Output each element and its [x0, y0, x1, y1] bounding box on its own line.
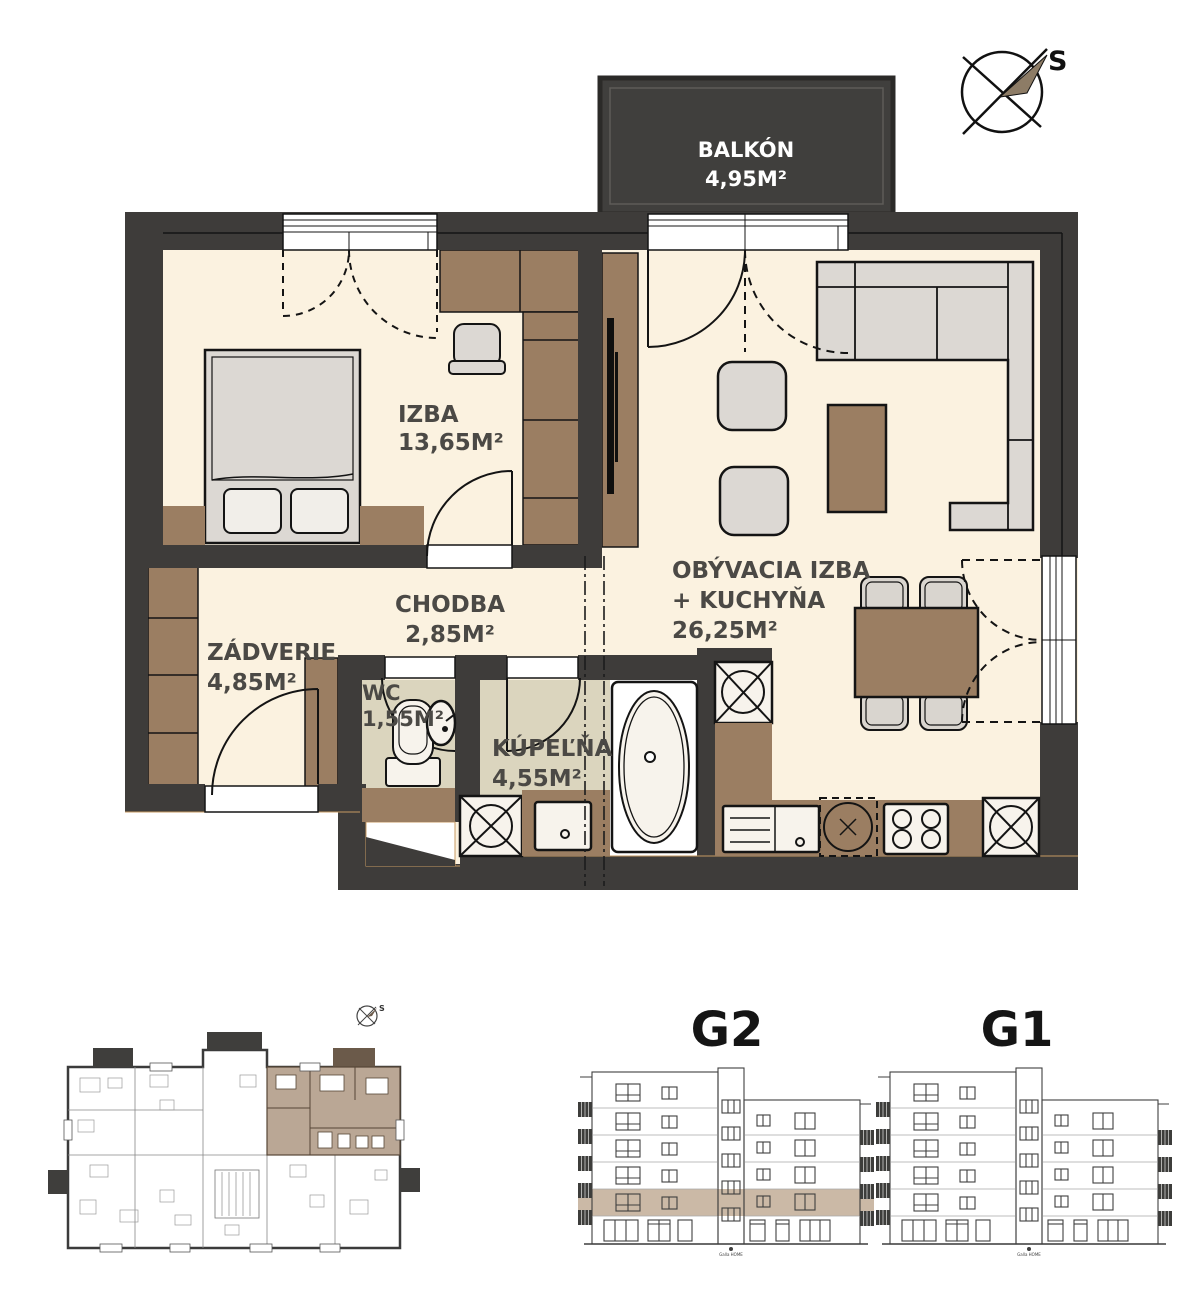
- pouf: [720, 467, 788, 535]
- overview-compass-label: S: [379, 1004, 385, 1013]
- builder-logo: Galla HOME: [719, 1252, 743, 1257]
- washing-machine: [460, 796, 522, 856]
- toilet-shelf: [362, 788, 455, 822]
- kitchen-tall-unit: [715, 662, 772, 723]
- nightstand: [360, 506, 424, 545]
- living-area: 26,25M²: [672, 618, 778, 644]
- floor-plan-canvas: BALKÓN 4,95M² S: [0, 0, 1200, 1301]
- pillow: [224, 489, 281, 533]
- fridge-unit: [983, 798, 1039, 856]
- wc-name: WC: [362, 681, 401, 705]
- stove: [884, 804, 948, 854]
- chodba-name: CHODBA: [395, 592, 505, 618]
- elevation-g2-floor-highlight: [578, 1189, 874, 1216]
- balcony: BALKÓN 4,95M²: [600, 78, 893, 214]
- balcony-area: 4,95M²: [705, 167, 787, 191]
- compass-north-label: S: [1048, 46, 1067, 77]
- overview-highlighted-unit: [267, 1067, 400, 1155]
- bathtub: [612, 682, 697, 852]
- wc-area: 1,55M²: [362, 707, 444, 731]
- shaft-niche: [366, 822, 455, 866]
- balcony-name: BALKÓN: [698, 137, 794, 162]
- wardrobe-top: [440, 250, 582, 312]
- elevation-g1-title: G1: [981, 1002, 1054, 1058]
- zadverie-area: 4,85M²: [207, 670, 297, 696]
- elevation-g2-title: G2: [691, 1002, 764, 1058]
- wardrobe-side: [523, 312, 582, 545]
- kitchen-sink: [723, 806, 819, 852]
- pouf: [718, 362, 786, 430]
- builder-logo: Galla HOME: [1017, 1252, 1041, 1257]
- izba-name: IZBA: [398, 402, 459, 428]
- kitchen-counter-corner: [715, 723, 772, 800]
- coffee-table: [828, 405, 886, 512]
- dining-table: [855, 608, 978, 697]
- hall-cabinet: [305, 658, 338, 788]
- entry-wardrobe: [148, 565, 198, 788]
- living-name-line2: + KUCHYŇA: [672, 586, 825, 614]
- chair: [449, 324, 505, 374]
- chodba-area: 2,85M²: [405, 622, 495, 648]
- living-name-line1: OBÝVACIA IZBA: [672, 556, 871, 584]
- bathroom-sink: [535, 802, 591, 850]
- kupelna-name: KÚPEĽŇA: [492, 734, 613, 762]
- pillow: [291, 489, 348, 533]
- tv: [607, 318, 614, 494]
- izba-area: 13,65M²: [398, 430, 504, 456]
- zadverie-name: ZÁDVERIE: [207, 638, 336, 666]
- kupelna-area: 4,55M²: [492, 766, 582, 792]
